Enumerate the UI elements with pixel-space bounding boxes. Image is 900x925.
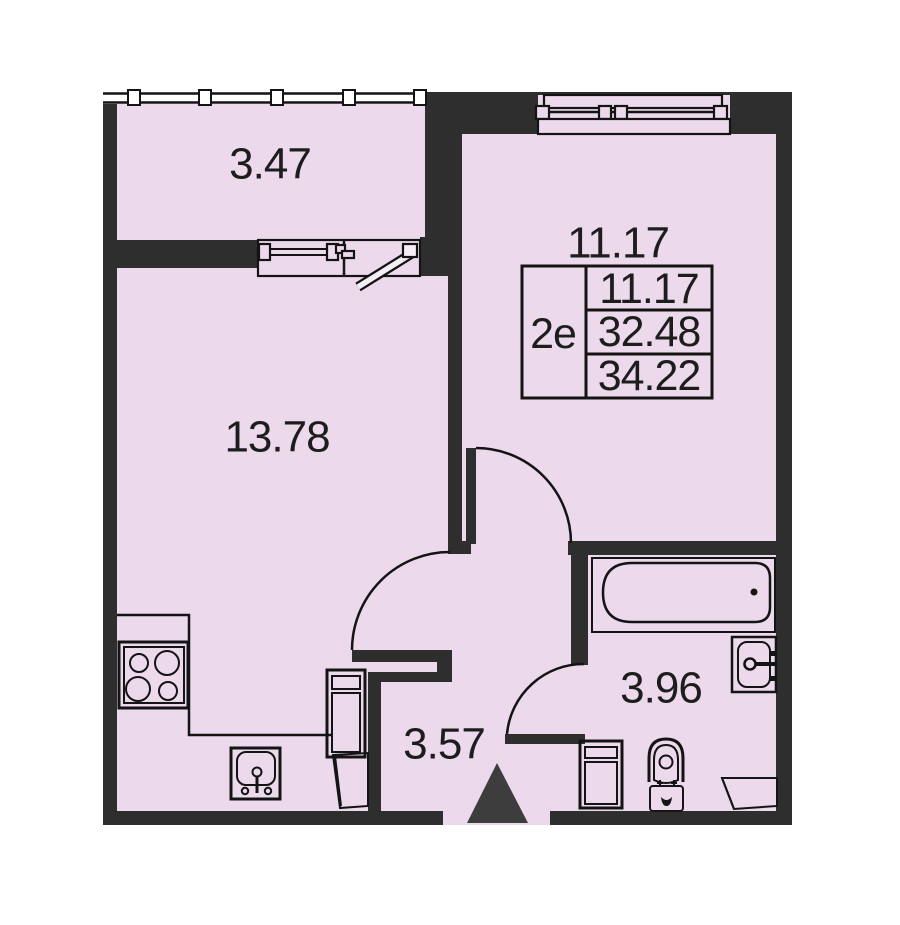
wall-column xyxy=(425,92,462,276)
window-frame-cap xyxy=(536,106,549,119)
balcony-window-step xyxy=(342,251,354,258)
balcony-glazing-window xyxy=(103,90,426,105)
window-frame-cap xyxy=(615,106,627,119)
bedroom-area-label: 11.17 xyxy=(567,219,669,268)
window-frame-cap xyxy=(714,106,727,119)
bathtub-drain xyxy=(751,589,758,596)
unit-type-label: 2e xyxy=(530,310,576,358)
balcony-door-hinge xyxy=(403,244,417,257)
wall-left xyxy=(103,92,117,825)
floor-plan: 3.47 13.78 11.17 3.57 3.96 2e 11.17 32.4… xyxy=(0,0,900,925)
wall-hinge-block xyxy=(437,660,452,674)
glazing-mullion xyxy=(199,90,211,105)
window-outer-sill xyxy=(544,95,722,108)
bedroom-door-leaf xyxy=(466,448,476,544)
wall-inter-room xyxy=(448,276,462,541)
basin-bracket xyxy=(769,676,775,681)
window-frame-cap xyxy=(599,106,611,119)
wall-hallway-vertical xyxy=(368,672,381,811)
floor-plan-page: 3.47 13.78 11.17 3.57 3.96 2e 11.17 32.4… xyxy=(0,0,900,925)
wall-balcony-divider xyxy=(103,240,258,268)
room-area-value: 11.17 xyxy=(599,265,698,313)
total-area-value: 34.22 xyxy=(598,352,701,400)
basin-bracket xyxy=(769,651,775,656)
bathroom-area-label: 3.96 xyxy=(620,664,702,713)
wall-bathroom-left xyxy=(571,555,588,665)
glazing-mullion xyxy=(271,90,283,105)
glazing-mullion xyxy=(414,90,426,105)
bathroom-door-leaf xyxy=(505,734,585,744)
living-kitchen-area-label: 13.78 xyxy=(224,413,329,462)
wall-bottom-right xyxy=(550,811,792,825)
window-inner-sill xyxy=(538,119,730,134)
balcony-window-cap xyxy=(259,244,270,260)
glazing-mullion xyxy=(128,90,140,105)
kitchen-door-leaf xyxy=(352,650,452,662)
basin-tap-head xyxy=(745,659,756,670)
balcony-area-label: 3.47 xyxy=(229,140,311,189)
wall-bathroom-top xyxy=(568,541,792,555)
glazing-mullion xyxy=(343,90,355,105)
wall-right xyxy=(776,92,792,825)
wall-bottom-left xyxy=(103,811,443,825)
hallway-area-label: 3.57 xyxy=(403,720,485,769)
living-area-value: 32.48 xyxy=(598,308,701,356)
wall-top-right-of-window xyxy=(730,92,776,134)
